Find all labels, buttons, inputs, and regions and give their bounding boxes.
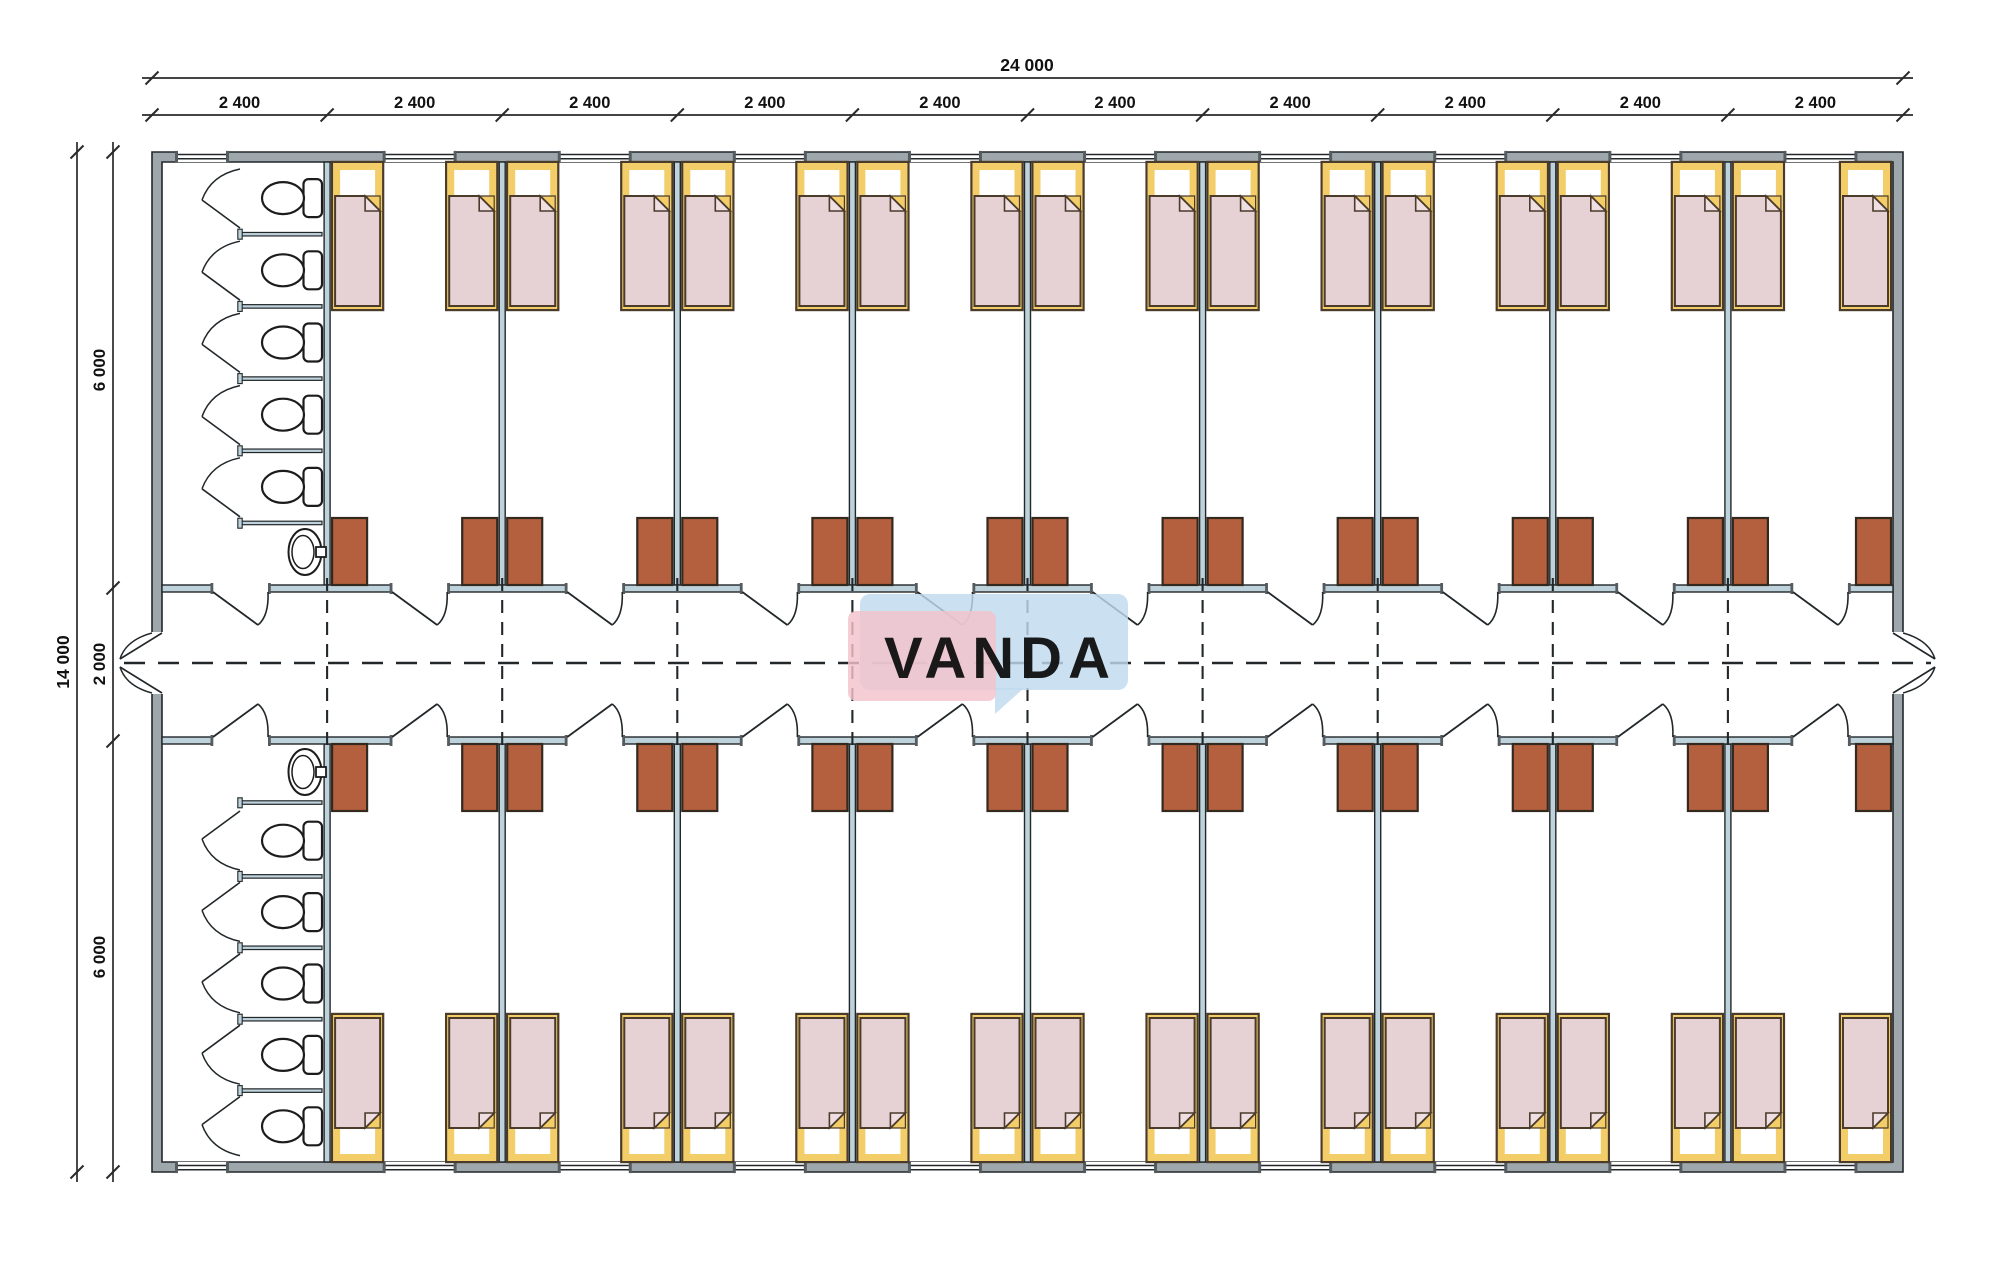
door-opening-lower [392, 736, 447, 745]
wardrobe [682, 744, 717, 811]
bed-mattress [685, 1018, 730, 1128]
washbasin-tap [316, 767, 326, 777]
bed-mattress [1150, 1018, 1195, 1128]
partition-wall-top [1550, 162, 1556, 585]
window-jamb [629, 1162, 632, 1173]
bed-mattress [1736, 1018, 1781, 1128]
toilet-tank [304, 893, 323, 931]
window-opening [385, 151, 455, 162]
toilet-bowl [262, 182, 304, 214]
partition-wall-bottom [849, 744, 855, 1162]
room-door-swing [1663, 704, 1673, 737]
wardrobe [1383, 518, 1418, 585]
window-jamb [1783, 1162, 1786, 1173]
toilet-bowl [262, 254, 304, 286]
wardrobe [332, 744, 367, 811]
bed-mattress [1843, 196, 1888, 306]
bed-mattress [1843, 1018, 1888, 1128]
window-jamb [1433, 151, 1436, 162]
window-jamb [1083, 1162, 1086, 1173]
door-opening-upper [1093, 584, 1148, 593]
window-opening [385, 1162, 455, 1173]
wardrobe [507, 518, 542, 585]
partition-wall-top [499, 162, 505, 585]
dim-label-top-bay: 2 400 [1445, 94, 1486, 112]
wardrobe [462, 518, 497, 585]
bed-mattress [624, 1018, 669, 1128]
wardrobe [462, 744, 497, 811]
window-opening [735, 151, 805, 162]
stall-front-cap [238, 374, 242, 384]
wardrobe [1558, 744, 1593, 811]
stall-door-swing [202, 386, 240, 417]
room-door-swing [1313, 704, 1323, 737]
window-opening [1085, 151, 1155, 162]
window-jamb [908, 1162, 911, 1173]
partition-wall-bottom [674, 744, 680, 1162]
window-jamb [733, 1162, 736, 1173]
wardrobe [637, 744, 672, 811]
partition-wall-top [1725, 162, 1731, 585]
wardrobe [1733, 518, 1768, 585]
window-jamb [383, 151, 386, 162]
room-door-swing [1838, 592, 1848, 625]
wardrobe [812, 744, 847, 811]
bed-mattress [799, 196, 844, 306]
room-door-swing [1488, 592, 1498, 625]
partition-wall-top [1200, 162, 1206, 585]
room-door-leaf [1443, 592, 1488, 625]
room-door-swing [437, 592, 447, 625]
watermark-logo: VANDA [848, 594, 1128, 714]
bed-mattress [335, 1018, 380, 1128]
bed-mattress [1561, 1018, 1606, 1128]
toilet-tank [304, 251, 323, 289]
window-opening [1435, 151, 1505, 162]
window-jamb [1504, 151, 1507, 162]
toilet-bowl [262, 471, 304, 503]
door-opening-upper [567, 584, 622, 593]
room-door-leaf [742, 592, 787, 625]
door-opening-upper [1793, 584, 1848, 593]
window-jamb [454, 1162, 457, 1173]
wardrobe [1383, 744, 1418, 811]
door-opening-lower [1793, 736, 1848, 745]
bed-mattress [1736, 196, 1781, 306]
room-door-swing [787, 592, 797, 625]
wardrobe [1208, 518, 1243, 585]
wardrobe [1513, 744, 1548, 811]
wardrobe [988, 744, 1023, 811]
bed-mattress [975, 1018, 1020, 1128]
room-door-leaf [567, 704, 612, 737]
wardrobe [1033, 744, 1068, 811]
washbasin-tap [316, 547, 326, 557]
stall-door-leaf [202, 1097, 240, 1125]
room-door-leaf [213, 592, 258, 625]
window-jamb [1083, 151, 1086, 162]
stall-door-leaf [202, 200, 240, 228]
stall-partition-bottom [240, 875, 322, 879]
door-opening-upper [1618, 584, 1673, 593]
room-door-leaf [213, 704, 258, 737]
window-opening [1610, 151, 1680, 162]
dim-label-top-bay: 2 400 [1620, 94, 1661, 112]
room-door-leaf [392, 592, 437, 625]
window-opening [177, 151, 227, 162]
window-jamb [1154, 151, 1157, 162]
wardrobe [1208, 744, 1243, 811]
toilet-bowl [262, 968, 304, 1000]
room-door-swing [787, 704, 797, 737]
partition-wall-top [849, 162, 855, 585]
window-jamb [1504, 1162, 1507, 1173]
toilet-tank [304, 965, 323, 1003]
dim-label-left-section: 2 000 [90, 643, 109, 686]
window-jamb [1433, 1162, 1436, 1173]
window-jamb [804, 151, 807, 162]
room-door-swing [1488, 704, 1498, 737]
window-opening [560, 1162, 630, 1173]
toilet-tank [304, 396, 323, 434]
door-opening-upper [917, 584, 972, 593]
partition-wall-top [1025, 162, 1031, 585]
dim-label-left-section: 6 000 [90, 936, 109, 979]
room-door-leaf [1093, 704, 1138, 737]
stall-door-leaf [202, 811, 240, 839]
window-opening [910, 151, 980, 162]
watermark-bubble-tail [995, 688, 1024, 714]
floor-plan-drawing: 24 0002 4002 4002 4002 4002 4002 4002 40… [0, 0, 2000, 1285]
stall-divider-top [240, 521, 322, 525]
stall-door-swing [202, 1125, 240, 1156]
bed-mattress [1211, 196, 1256, 306]
room-door-swing [1138, 704, 1148, 737]
window-jamb [979, 1162, 982, 1173]
bed-mattress [1386, 196, 1431, 306]
toilet-bowl [262, 896, 304, 928]
wardrobe [988, 518, 1023, 585]
room-door-swing [612, 592, 622, 625]
room-door-swing [962, 704, 972, 737]
window-jamb [1329, 1162, 1332, 1173]
bed-mattress [449, 1018, 494, 1128]
room-door-leaf [567, 592, 612, 625]
bed-mattress [1150, 196, 1195, 306]
window-opening [1260, 151, 1330, 162]
toilet-tank [304, 324, 323, 362]
bed-mattress [1036, 196, 1081, 306]
wardrobe [637, 518, 672, 585]
room-door-leaf [1268, 592, 1313, 625]
toilet-tank [304, 179, 323, 217]
toilet-bowl [262, 1110, 304, 1142]
bed-mattress [1386, 1018, 1431, 1128]
dim-label-top-total: 24 000 [1000, 55, 1054, 75]
room-door-leaf [1793, 704, 1838, 737]
window-jamb [1154, 1162, 1157, 1173]
dim-label-top-bay: 2 400 [394, 94, 435, 112]
stall-front-cap [238, 871, 242, 881]
window-jamb [1608, 1162, 1611, 1173]
room-door-swing [258, 592, 268, 625]
room-door-leaf [917, 704, 962, 737]
dim-label-left-total: 14 000 [53, 635, 73, 689]
stall-partition-top [240, 305, 322, 309]
stall-front-cap [238, 798, 242, 808]
floor-plan-canvas: 24 0002 4002 4002 4002 4002 4002 4002 40… [0, 0, 2000, 1285]
window-jamb [226, 1162, 229, 1173]
window-jamb [175, 1162, 178, 1173]
room-door-swing [1313, 592, 1323, 625]
wardrobe [1163, 518, 1198, 585]
door-opening-lower [1268, 736, 1323, 745]
window-jamb [175, 151, 178, 162]
room-door-leaf [742, 704, 787, 737]
toilet-tank [304, 822, 323, 860]
bed-mattress [335, 196, 380, 306]
wardrobe [1688, 744, 1723, 811]
room-door-leaf [392, 704, 437, 737]
door-opening-lower [1618, 736, 1673, 745]
room-door-swing [612, 704, 622, 737]
room-door-leaf [1793, 592, 1838, 625]
dim-label-top-bay: 2 400 [744, 94, 785, 112]
window-jamb [1679, 151, 1682, 162]
stall-door-leaf [202, 882, 240, 910]
stall-partition-top [240, 377, 322, 381]
wardrobe [1688, 518, 1723, 585]
window-jamb [908, 151, 911, 162]
stall-door-swing [202, 910, 240, 941]
bed-mattress [1500, 1018, 1545, 1128]
dim-label-top-bay: 2 400 [569, 94, 610, 112]
door-opening-lower [742, 736, 797, 745]
partition-wall-bottom [1200, 744, 1206, 1162]
window-jamb [1783, 151, 1786, 162]
partition-wall-bottom [1550, 744, 1556, 1162]
toilet-bowl [262, 327, 304, 359]
stall-door-leaf [202, 489, 240, 517]
wardrobe [857, 518, 892, 585]
stall-partition-bottom [240, 1017, 322, 1021]
partition-wall-bottom [324, 744, 330, 1162]
door-opening-upper [742, 584, 797, 593]
partition-wall-top [324, 162, 330, 585]
door-opening-upper [1268, 584, 1323, 593]
stall-door-swing [202, 169, 240, 200]
door-opening-upper [392, 584, 447, 593]
window-jamb [1608, 151, 1611, 162]
door-opening-lower [567, 736, 622, 745]
room-door-leaf [1618, 592, 1663, 625]
toilet-tank [304, 468, 323, 506]
window-opening [1085, 1162, 1155, 1173]
window-jamb [733, 151, 736, 162]
partition-wall-bottom [1025, 744, 1031, 1162]
room-door-swing [1138, 592, 1148, 625]
room-door-leaf [1268, 704, 1313, 737]
bed-mattress [685, 196, 730, 306]
window-jamb [383, 1162, 386, 1173]
stall-door-leaf [202, 417, 240, 445]
stall-partition-bottom [240, 946, 322, 950]
wardrobe [857, 744, 892, 811]
window-opening [1610, 1162, 1680, 1173]
toilet-tank [304, 1036, 323, 1074]
wardrobe [1856, 744, 1891, 811]
bed-mattress [799, 1018, 844, 1128]
toilet-tank [304, 1107, 323, 1145]
dim-label-top-bay: 2 400 [1795, 94, 1836, 112]
window-jamb [558, 1162, 561, 1173]
room-door-swing [437, 704, 447, 737]
toilet-bowl [262, 1039, 304, 1071]
stall-door-swing [202, 1053, 240, 1084]
door-opening-upper [1443, 584, 1498, 593]
wardrobe [1163, 744, 1198, 811]
bed-mattress [449, 196, 494, 306]
dim-label-top-bay: 2 400 [1094, 94, 1135, 112]
wardrobe [507, 744, 542, 811]
bed-mattress [1561, 196, 1606, 306]
stall-front-cap [238, 229, 242, 239]
room-door-swing [258, 704, 268, 737]
window-jamb [558, 151, 561, 162]
window-opening [1785, 151, 1855, 162]
stall-door-swing [202, 313, 240, 344]
door-opening-upper [213, 584, 268, 593]
bed-mattress [1325, 1018, 1370, 1128]
bed-mattress [510, 1018, 555, 1128]
window-jamb [1854, 151, 1857, 162]
wardrobe [1338, 744, 1373, 811]
bed-mattress [1211, 1018, 1256, 1128]
window-jamb [629, 151, 632, 162]
door-opening-lower [1093, 736, 1148, 745]
door-opening-lower [1443, 736, 1498, 745]
wardrobe [332, 518, 367, 585]
stall-front-cap [238, 518, 242, 528]
stall-door-swing [202, 982, 240, 1013]
wardrobe [812, 518, 847, 585]
bed-mattress [860, 1018, 905, 1128]
watermark-text: VANDA [884, 626, 1116, 691]
stall-door-swing [202, 241, 240, 272]
stall-partition-top [240, 449, 322, 453]
window-opening [1785, 1162, 1855, 1173]
room-door-leaf [1618, 704, 1663, 737]
stall-front-cap [238, 1086, 242, 1096]
window-jamb [1854, 1162, 1857, 1173]
bed-mattress [1036, 1018, 1081, 1128]
wardrobe [1558, 518, 1593, 585]
door-opening-lower [917, 736, 972, 745]
dim-label-top-bay: 2 400 [1270, 94, 1311, 112]
window-opening [1435, 1162, 1505, 1173]
wardrobe [1338, 518, 1373, 585]
dim-label-top-bay: 2 400 [919, 94, 960, 112]
stall-door-swing [202, 839, 240, 870]
window-opening [735, 1162, 805, 1173]
stall-partition-top [240, 232, 322, 236]
partition-wall-bottom [1725, 744, 1731, 1162]
toilet-bowl [262, 399, 304, 431]
wardrobe [1033, 518, 1068, 585]
window-jamb [1258, 1162, 1261, 1173]
stall-door-leaf [202, 344, 240, 372]
window-opening [177, 1162, 227, 1173]
toilet-bowl [262, 825, 304, 857]
window-jamb [979, 151, 982, 162]
stall-door-swing [202, 458, 240, 489]
room-door-leaf [1443, 704, 1488, 737]
wardrobe [1513, 518, 1548, 585]
bed-mattress [624, 196, 669, 306]
stall-front-cap [238, 446, 242, 456]
room-door-swing [1663, 592, 1673, 625]
bed-mattress [1325, 196, 1370, 306]
partition-wall-bottom [499, 744, 505, 1162]
window-jamb [1258, 151, 1261, 162]
window-opening [1260, 1162, 1330, 1173]
door-opening-lower [213, 736, 268, 745]
bed-mattress [1675, 1018, 1720, 1128]
partition-wall-top [674, 162, 680, 585]
window-jamb [454, 151, 457, 162]
stall-front-cap [238, 301, 242, 311]
wardrobe [1733, 744, 1768, 811]
bed-mattress [1500, 196, 1545, 306]
window-opening [560, 151, 630, 162]
wardrobe [1856, 518, 1891, 585]
window-opening [910, 1162, 980, 1173]
dim-label-top-bay: 2 400 [219, 94, 260, 112]
partition-wall-bottom [1375, 744, 1381, 1162]
window-jamb [1329, 151, 1332, 162]
room-door-swing [1838, 704, 1848, 737]
stall-front-cap [238, 943, 242, 953]
stall-front-cap [238, 1014, 242, 1024]
bed-mattress [1675, 196, 1720, 306]
window-jamb [804, 1162, 807, 1173]
bed-mattress [860, 196, 905, 306]
bed-mattress [975, 196, 1020, 306]
stall-partition-bottom [240, 1089, 322, 1093]
stall-door-leaf [202, 954, 240, 982]
dim-label-left-section: 6 000 [90, 349, 109, 392]
bed-mattress [510, 196, 555, 306]
partition-wall-top [1375, 162, 1381, 585]
stall-door-leaf [202, 272, 240, 300]
window-jamb [226, 151, 229, 162]
wardrobe [682, 518, 717, 585]
stall-divider-bottom [240, 801, 322, 805]
stall-door-leaf [202, 1025, 240, 1053]
window-jamb [1679, 1162, 1682, 1173]
